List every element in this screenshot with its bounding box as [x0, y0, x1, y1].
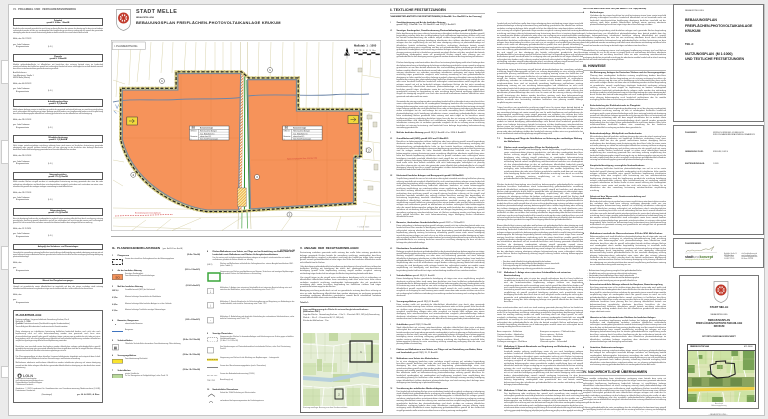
svg-text:Bauweise: Bauweise [191, 136, 198, 138]
svg-text:abweichend 4,5: abweichend 4,5 [200, 136, 211, 138]
svg-text:⁝: ⁝ [210, 304, 211, 308]
svg-text:a: a [191, 139, 192, 141]
svg-text:I. PLANZEICHNUNG: I. PLANZEICHNUNG [114, 45, 138, 48]
svg-text:Sonnenenergie: Sonnenenergie [200, 128, 213, 130]
svg-text:LGLN: LGLN [23, 374, 33, 378]
svg-text:SO: SO [115, 276, 120, 280]
svg-text:SO: SO [285, 127, 289, 130]
svg-text:Bauweise: Bauweise [284, 136, 291, 138]
svg-text:GRZ 0,6: GRZ 0,6 [191, 131, 197, 133]
svg-text:a: a [284, 139, 285, 141]
svg-text:·: · [210, 319, 211, 323]
svg-text:0 10 20 30 40 50: 0 10 20 30 40 50 60 m [354, 50, 376, 52]
svg-text:GRZ 0,6: GRZ 0,6 [284, 131, 290, 133]
svg-text:© LGLN 2023: © LGLN 2023 [357, 226, 370, 229]
svg-text:abweichend 4,5: abweichend 4,5 [293, 136, 304, 138]
svg-text:Bestandsweg (wird zurückgebaut: Bestandsweg (wird zurückgebaut) [135, 212, 161, 215]
svg-text:Maßstab 1 : 1000: Maßstab 1 : 1000 [354, 44, 377, 48]
svg-text:SO: SO [192, 127, 196, 130]
svg-text:Sonnenenergie: Sonnenenergie [293, 128, 306, 130]
svg-text:max. Modulhöhe 3,5: max. Modulhöhe 3,5 [293, 133, 308, 135]
svg-text:max. Modulhöhe 3,5: max. Modulhöhe 3,5 [200, 133, 215, 135]
svg-text:▩: ▩ [114, 346, 118, 350]
svg-text:⁞: ⁞ [210, 289, 211, 293]
